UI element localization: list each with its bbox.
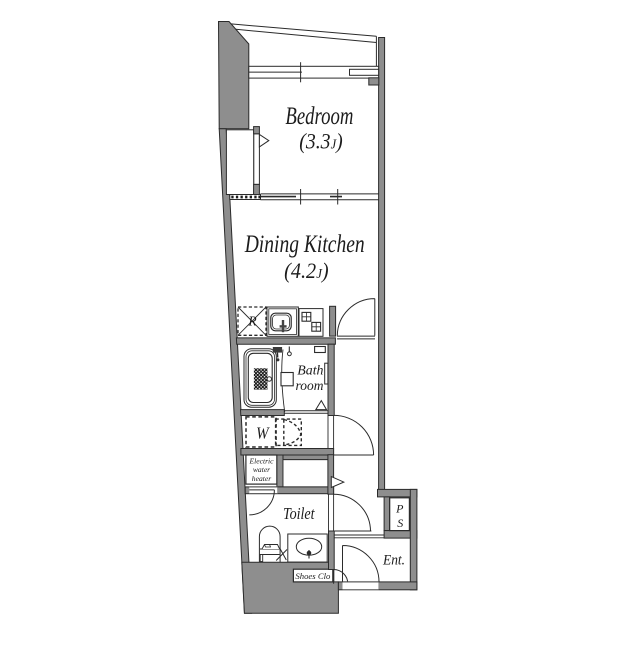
svg-text:Bath: Bath xyxy=(297,363,323,378)
svg-text:W: W xyxy=(256,423,270,442)
svg-text:R: R xyxy=(247,314,257,329)
svg-text:(4.2J): (4.2J) xyxy=(284,258,329,283)
svg-text:(3.3J): (3.3J) xyxy=(299,129,343,154)
svg-text:Toilet: Toilet xyxy=(283,504,316,523)
svg-text:Ent.: Ent. xyxy=(382,553,405,569)
svg-text:S: S xyxy=(397,516,403,530)
svg-text:heater: heater xyxy=(252,474,271,483)
svg-text:P: P xyxy=(395,502,404,516)
svg-text:room: room xyxy=(296,378,324,393)
svg-text:Dining Kitchen: Dining Kitchen xyxy=(244,231,365,258)
svg-text:Bedroom: Bedroom xyxy=(285,103,353,130)
svg-text:Shoes Clo: Shoes Clo xyxy=(295,571,331,581)
